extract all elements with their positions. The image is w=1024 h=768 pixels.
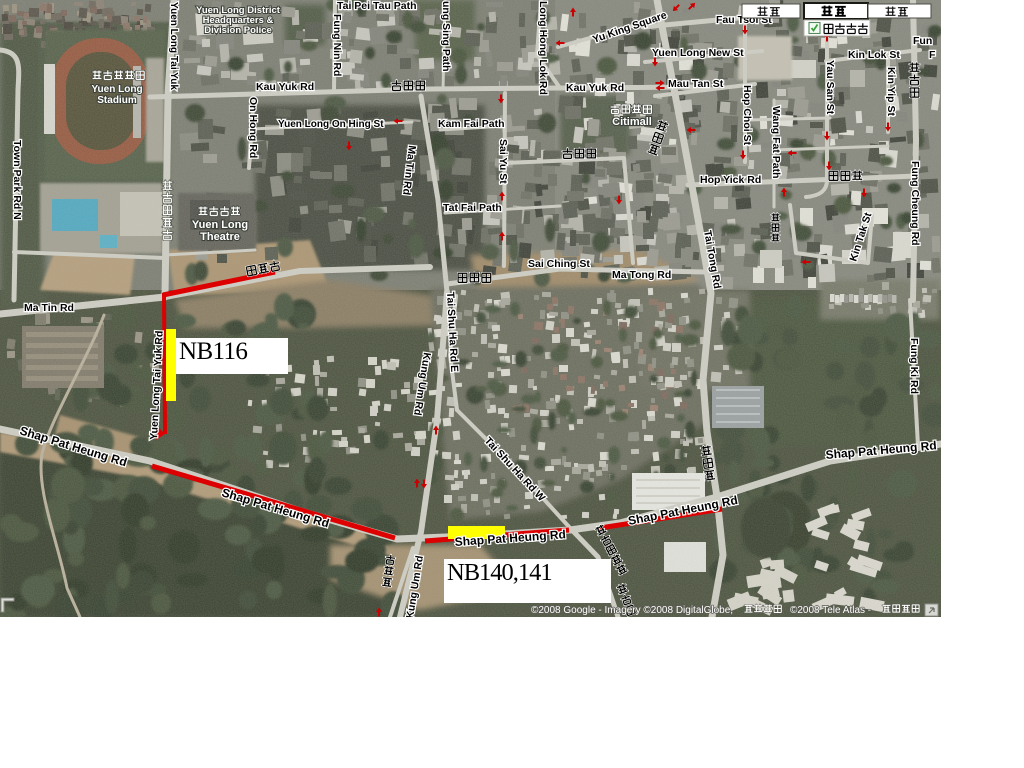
svg-text:Town Park Rd N: Town Park Rd N <box>11 140 23 220</box>
svg-text:Hop Choi St: Hop Choi St <box>741 85 753 146</box>
svg-text:Theatre: Theatre <box>200 231 240 243</box>
svg-text:Ma Tin Rd: Ma Tin Rd <box>24 302 74 314</box>
svg-text:Kau Yuk Rd: Kau Yuk Rd <box>256 81 314 93</box>
svg-text:F: F <box>929 49 936 61</box>
svg-text:©2008 Google - Imagery ©2008 D: ©2008 Google - Imagery ©2008 DigitalGlob… <box>531 605 733 616</box>
svg-text:Kam Fai Path: Kam Fai Path <box>438 118 505 130</box>
svg-text:Fung Ki Rd: Fung Ki Rd <box>908 338 920 394</box>
svg-text:Fung Cheung Rd: Fung Cheung Rd <box>909 161 921 246</box>
svg-text:Yuen Long New St: Yuen Long New St <box>652 47 744 59</box>
svg-text:Long Hong Lok Rd: Long Hong Lok Rd <box>537 1 549 95</box>
svg-text:Mau Tan St: Mau Tan St <box>668 78 724 90</box>
svg-text:Hop Yick Rd: Hop Yick Rd <box>700 174 761 186</box>
svg-text:©2008 Tele Atlas -: ©2008 Tele Atlas - <box>790 605 871 616</box>
svg-text:Kau Yuk Rd: Kau Yuk Rd <box>566 82 624 94</box>
svg-text:NB116: NB116 <box>179 338 247 365</box>
svg-text:Tai Pei Tau Path: Tai Pei Tau Path <box>337 0 417 12</box>
svg-text:Fun: Fun <box>913 35 932 47</box>
svg-text:Sai Yu St: Sai Yu St <box>497 139 509 184</box>
svg-text:Ma Tong Rd: Ma Tong Rd <box>612 269 671 281</box>
svg-text:On Hong Rd: On Hong Rd <box>247 97 259 158</box>
svg-text:Wang Fat Path: Wang Fat Path <box>770 106 782 179</box>
svg-text:Stadium: Stadium <box>97 95 137 106</box>
svg-text:Yuen Long On Hing St: Yuen Long On Hing St <box>278 119 384 130</box>
svg-text:Sai Ching St: Sai Ching St <box>528 258 590 270</box>
svg-text:NB140,141: NB140,141 <box>447 559 552 586</box>
svg-text:ung Sing Path: ung Sing Path <box>440 1 452 72</box>
svg-text:Yuen Long: Yuen Long <box>192 219 248 231</box>
svg-text:Yuen Long: Yuen Long <box>91 84 142 95</box>
svg-text:Division Police: Division Police <box>204 25 272 36</box>
svg-text:Yuen Long Tai Yuk: Yuen Long Tai Yuk <box>168 2 179 90</box>
svg-text:Kin Lok St: Kin Lok St <box>848 49 900 61</box>
svg-text:Fung Nin Rd: Fung Nin Rd <box>331 14 343 76</box>
svg-text:Tat Fai Path: Tat Fai Path <box>443 202 502 214</box>
svg-text:Kin Yip St: Kin Yip St <box>885 67 897 117</box>
svg-text:Yau San St: Yau San St <box>824 60 836 115</box>
svg-text:Citimall: Citimall <box>612 116 652 128</box>
